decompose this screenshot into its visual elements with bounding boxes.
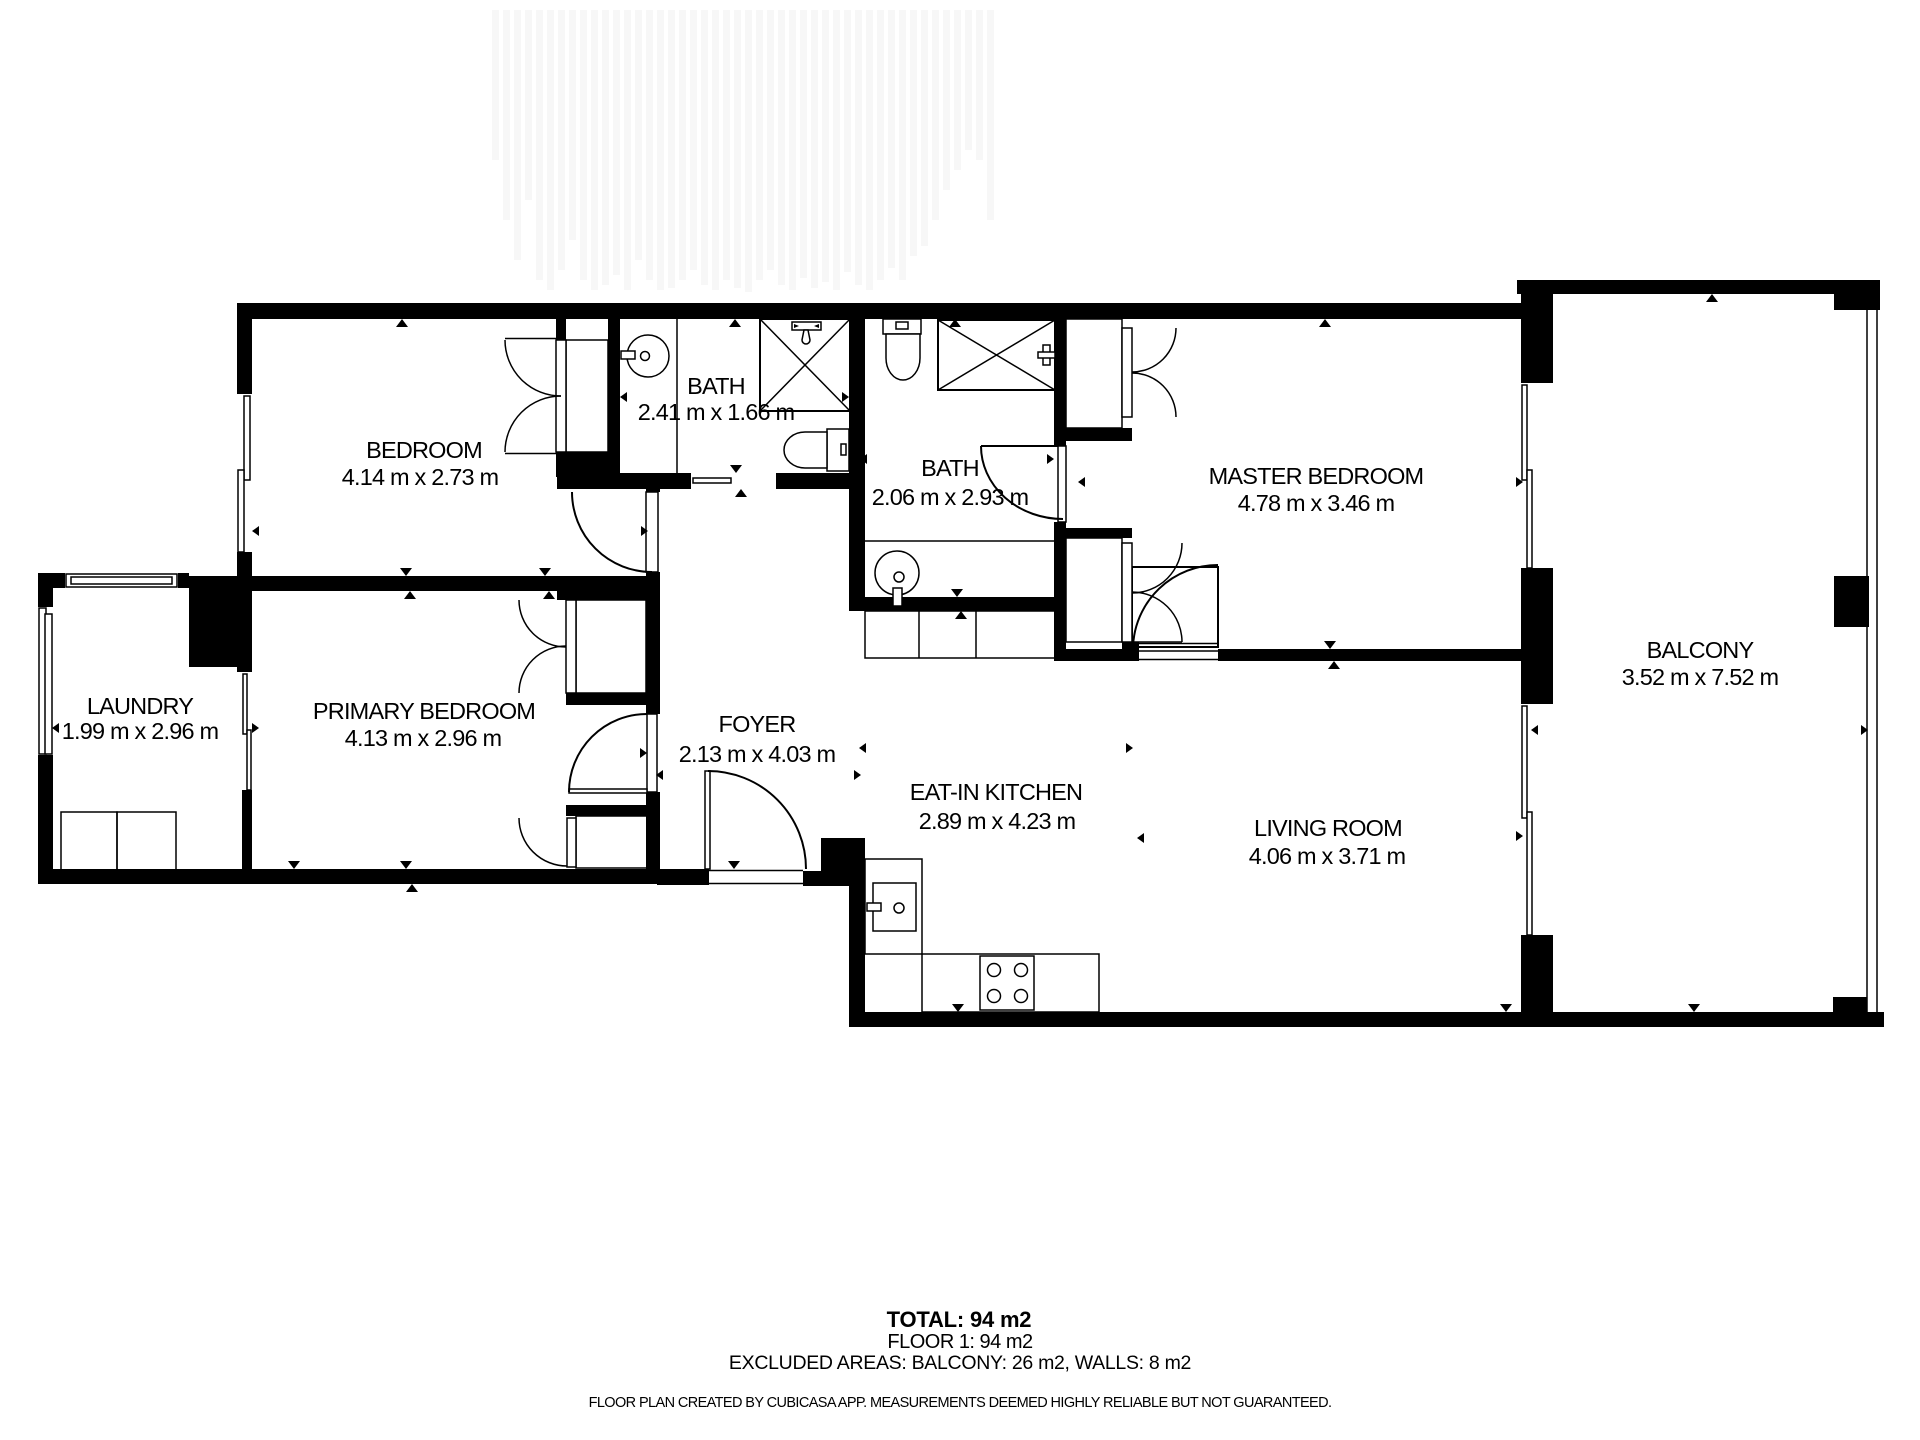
svg-text:4.06 m x 3.71 m: 4.06 m x 3.71 m (1249, 843, 1406, 869)
svg-text:BEDROOM: BEDROOM (366, 437, 482, 463)
svg-text:MASTER BEDROOM: MASTER BEDROOM (1209, 463, 1424, 489)
svg-text:BALCONY: BALCONY (1647, 637, 1755, 663)
svg-text:LAUNDRY: LAUNDRY (87, 693, 194, 719)
svg-text:EAT-IN KITCHEN: EAT-IN KITCHEN (910, 779, 1082, 805)
svg-text:4.13 m x 2.96 m: 4.13 m x 2.96 m (345, 725, 502, 751)
svg-text:TOTAL: 94 m2: TOTAL: 94 m2 (887, 1307, 1032, 1332)
svg-text:BATH: BATH (687, 373, 745, 399)
svg-text:BATH: BATH (921, 455, 979, 481)
svg-text:LIVING ROOM: LIVING ROOM (1254, 815, 1402, 841)
svg-text:FLOOR PLAN CREATED BY CUBICASA: FLOOR PLAN CREATED BY CUBICASA APP. MEAS… (589, 1395, 1332, 1411)
svg-text:EXCLUDED AREAS: BALCONY: 26 m2: EXCLUDED AREAS: BALCONY: 26 m2, WALLS: 8… (729, 1352, 1191, 1374)
svg-text:2.89 m x 4.23 m: 2.89 m x 4.23 m (919, 808, 1076, 834)
svg-text:FLOOR 1: 94 m2: FLOOR 1: 94 m2 (887, 1331, 1033, 1353)
svg-text:2.13 m x 4.03 m: 2.13 m x 4.03 m (679, 741, 836, 767)
svg-text:2.06 m x 2.93 m: 2.06 m x 2.93 m (872, 484, 1029, 510)
svg-text:1.99 m x 2.96 m: 1.99 m x 2.96 m (62, 718, 219, 744)
svg-text:2.41 m x 1.66 m: 2.41 m x 1.66 m (638, 399, 795, 425)
svg-text:3.52 m x 7.52 m: 3.52 m x 7.52 m (1622, 664, 1779, 690)
svg-text:4.14 m x 2.73 m: 4.14 m x 2.73 m (342, 464, 499, 490)
svg-text:PRIMARY BEDROOM: PRIMARY BEDROOM (313, 698, 535, 724)
svg-text:4.78 m x 3.46 m: 4.78 m x 3.46 m (1238, 490, 1395, 516)
svg-text:FOYER: FOYER (719, 711, 796, 737)
